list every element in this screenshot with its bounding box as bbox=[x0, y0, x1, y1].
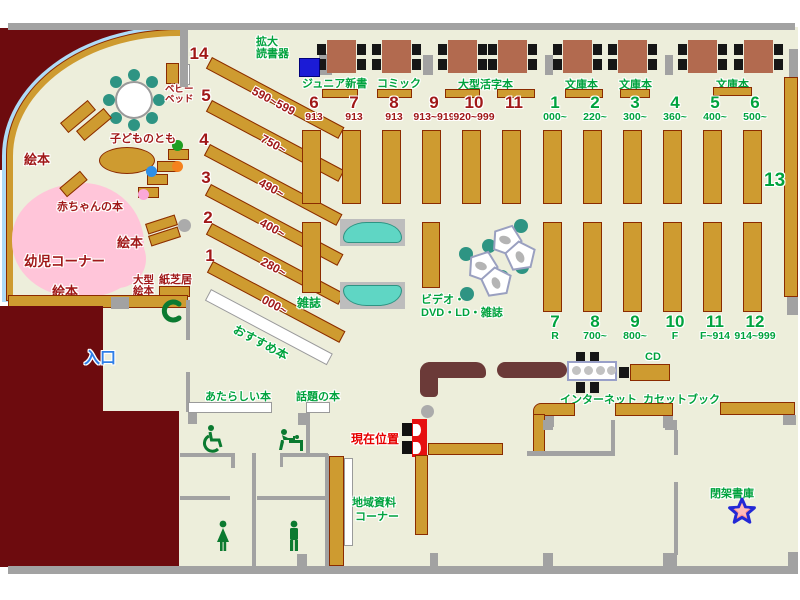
bookstack bbox=[743, 222, 762, 312]
library-floor-map: { "top": { "kakudai": {"line1": "拡大", "l… bbox=[0, 0, 800, 600]
monitor bbox=[607, 366, 616, 375]
reading-table bbox=[553, 40, 602, 73]
service-counter bbox=[420, 362, 438, 397]
seat-dot-pink bbox=[138, 189, 149, 200]
chair-dot bbox=[146, 76, 158, 88]
monitor bbox=[584, 366, 593, 375]
changing-table-icon bbox=[277, 428, 305, 452]
bookstack bbox=[422, 130, 441, 204]
local-materials-shelf bbox=[329, 456, 344, 566]
wall-segment bbox=[611, 420, 615, 453]
pillar bbox=[178, 219, 191, 232]
local-materials-label: 地域資料コーナー bbox=[352, 497, 399, 525]
entrance-label: 入口 bbox=[84, 344, 116, 368]
pillar bbox=[663, 553, 677, 567]
pillar bbox=[789, 49, 798, 77]
pillar bbox=[298, 413, 307, 425]
reading-table bbox=[734, 40, 783, 73]
ogata-ehon-label: 大型絵本 bbox=[133, 275, 154, 297]
reading-table bbox=[488, 40, 537, 73]
chair-dot bbox=[128, 69, 140, 81]
shelf-shadow bbox=[783, 415, 796, 425]
marker-block bbox=[402, 423, 412, 436]
bookstack bbox=[382, 130, 401, 204]
wall-segment bbox=[252, 453, 256, 499]
wall-segment bbox=[257, 496, 328, 500]
bookstack bbox=[583, 130, 602, 204]
long-shelf bbox=[720, 402, 795, 415]
wall-segment bbox=[527, 451, 615, 456]
pillar bbox=[787, 296, 798, 315]
ehon-label-mid: 絵本 bbox=[117, 232, 143, 251]
bookstack bbox=[663, 130, 682, 204]
wall-segment bbox=[280, 453, 328, 457]
seat-dot-blue bbox=[146, 166, 157, 177]
cd-shelf bbox=[630, 364, 670, 381]
marker-seat bbox=[413, 424, 421, 436]
pillar bbox=[423, 55, 433, 75]
bookstack bbox=[502, 130, 521, 204]
chair-dot bbox=[146, 112, 158, 124]
stack-label: 12914~999 bbox=[729, 313, 781, 342]
reading-table bbox=[678, 40, 727, 73]
wall-segment bbox=[231, 457, 235, 468]
wall-segment bbox=[325, 454, 329, 568]
shelf-number: 3 bbox=[193, 168, 219, 188]
chair-dot bbox=[103, 94, 115, 106]
bookstack bbox=[623, 222, 642, 312]
reading-table bbox=[608, 40, 657, 73]
wall-segment bbox=[252, 499, 256, 568]
cassette-shelf bbox=[615, 403, 673, 416]
monitor bbox=[596, 366, 605, 375]
bookstack bbox=[703, 222, 722, 312]
wall-segment bbox=[280, 457, 283, 467]
baby-bed-label: ベビーベッド bbox=[165, 85, 194, 105]
public-phone-icon bbox=[162, 299, 184, 323]
cd-label: CD bbox=[645, 351, 661, 363]
local-shelf bbox=[428, 443, 503, 455]
lobby-wall bbox=[186, 300, 190, 340]
pillar bbox=[188, 413, 197, 424]
closed-stacks-star-icon bbox=[727, 496, 757, 526]
bookstack bbox=[462, 130, 481, 204]
stack-label: 6500~ bbox=[729, 94, 781, 123]
magazine-rack bbox=[340, 219, 405, 246]
top-wall bbox=[8, 23, 795, 30]
local-materials-shelf bbox=[415, 455, 428, 535]
wall-segment bbox=[674, 430, 678, 455]
seat-dot-orange bbox=[172, 161, 183, 172]
shelf-number: 14 bbox=[186, 44, 212, 64]
chair-dot bbox=[110, 76, 122, 88]
marker-block bbox=[402, 441, 412, 454]
bookstack bbox=[543, 130, 562, 204]
pillar bbox=[543, 553, 553, 567]
current-location-label: 現在位置 bbox=[351, 430, 399, 447]
pillar bbox=[545, 55, 553, 75]
exterior-bottom-left bbox=[103, 411, 179, 567]
monitor bbox=[572, 366, 581, 375]
new-books-shelf bbox=[188, 402, 272, 413]
pillar bbox=[543, 420, 553, 430]
stack-label-13: 13 bbox=[764, 170, 785, 192]
reading-table bbox=[372, 40, 421, 73]
video-stack bbox=[422, 222, 440, 288]
shelf-number: 1 bbox=[197, 246, 223, 266]
bookstack bbox=[743, 130, 762, 204]
magazine-label: 雑誌 bbox=[297, 294, 321, 311]
service-counter bbox=[497, 362, 567, 378]
baby-bed bbox=[166, 63, 179, 84]
wheelchair-icon bbox=[198, 424, 226, 454]
reading-table bbox=[438, 40, 487, 73]
magazine-stack bbox=[302, 222, 321, 293]
bookstack-13 bbox=[784, 77, 798, 297]
woman-icon bbox=[213, 520, 233, 552]
av-carrels bbox=[447, 202, 547, 302]
kamishibai-label: 紙芝居 bbox=[159, 271, 192, 287]
chair-dot bbox=[153, 94, 165, 106]
chair bbox=[619, 367, 629, 378]
bookstack bbox=[302, 130, 321, 204]
marker-seat bbox=[413, 442, 421, 454]
magazine-rack bbox=[340, 282, 405, 309]
magnifier-label: 拡大読書器 bbox=[256, 36, 289, 60]
man-icon bbox=[285, 520, 303, 552]
youji-corner-label: 幼児コーナー bbox=[24, 250, 105, 270]
wall-segment bbox=[180, 496, 230, 500]
reading-table bbox=[317, 40, 366, 73]
bookstack bbox=[703, 130, 722, 204]
pillar bbox=[421, 405, 434, 418]
kodomo-no-tomo-label: 子どものとも bbox=[110, 130, 176, 146]
pillar-block bbox=[111, 297, 129, 309]
pillar bbox=[665, 55, 673, 75]
pillar bbox=[788, 552, 798, 567]
pillar bbox=[665, 420, 677, 430]
akachan-label: 赤ちゃんの本 bbox=[57, 198, 123, 214]
topic-books-shelf bbox=[306, 402, 330, 413]
pillar bbox=[430, 553, 438, 567]
wall-segment bbox=[674, 482, 678, 555]
bookstack bbox=[623, 130, 642, 204]
bookstack bbox=[342, 130, 361, 204]
bookstack bbox=[663, 222, 682, 312]
bottom-wall bbox=[8, 566, 798, 574]
bookstack bbox=[583, 222, 602, 312]
ehon-label-left: 絵本 bbox=[24, 149, 50, 168]
